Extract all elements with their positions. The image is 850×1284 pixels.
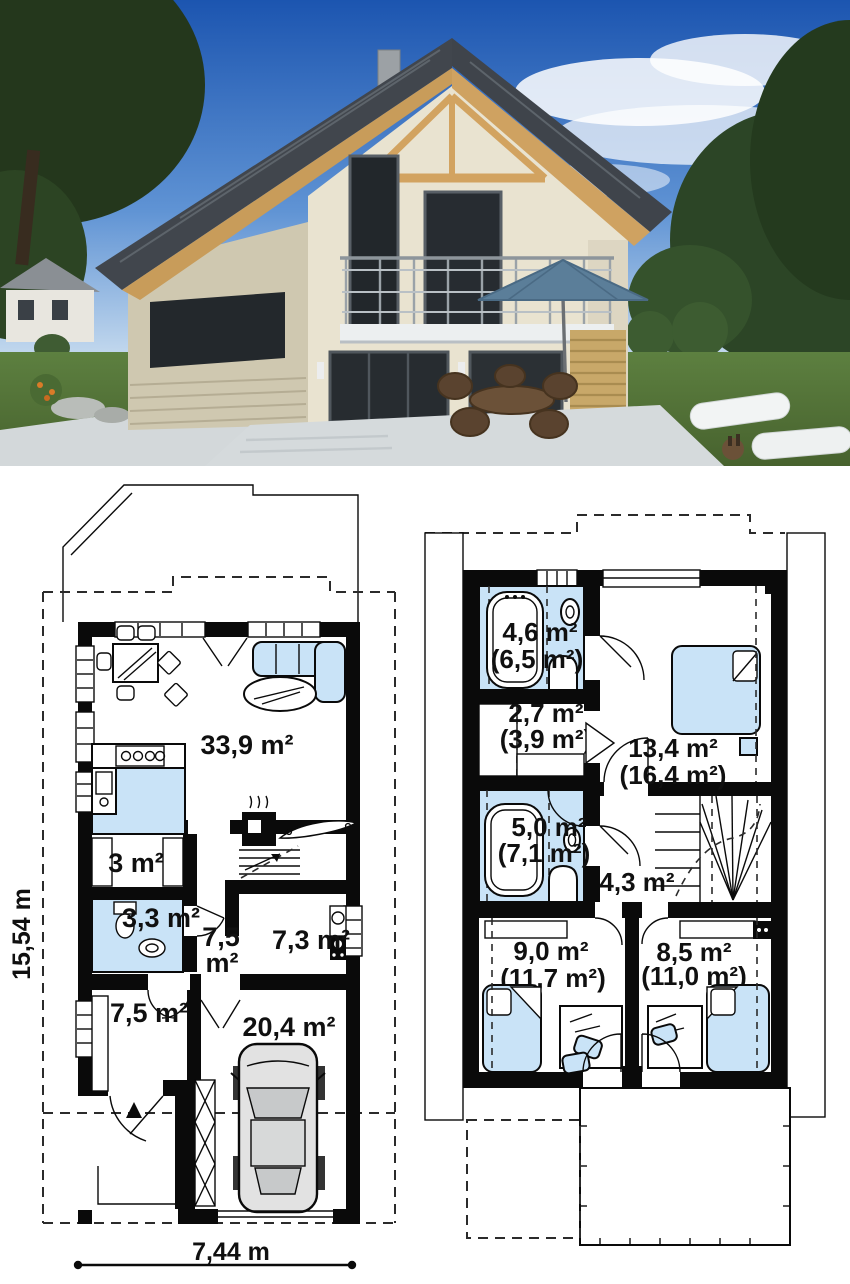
patio-door-left — [330, 352, 448, 422]
bath-gross-label: (6,5 m²) — [491, 644, 583, 674]
bedroom-bottom-right: 8,5 m² (11,0 m²) — [641, 918, 771, 1072]
chair — [138, 626, 155, 640]
wardrobe-band — [92, 996, 108, 1091]
chair — [117, 686, 134, 700]
hall-area-line2: m² — [206, 948, 239, 978]
door-swing — [600, 826, 640, 866]
car — [231, 1044, 325, 1212]
dimension-horizontal-label: 7,44 m — [192, 1238, 270, 1266]
stove — [116, 746, 164, 766]
winder-stairs — [655, 796, 771, 902]
chair — [157, 651, 181, 675]
windows — [537, 570, 700, 587]
stove-icon — [753, 921, 771, 939]
bedroom-gross-label: (16,4 m²) — [620, 760, 727, 790]
side-window-band — [150, 292, 285, 368]
entry-door — [110, 1096, 163, 1141]
terrace-outline — [63, 485, 358, 622]
wardrobe-area-label: 3 m² — [108, 848, 164, 878]
chair — [164, 683, 188, 707]
roof-slope-band-left — [425, 533, 463, 1120]
dimension-vertical-label: 15,54 m — [8, 888, 36, 980]
rack — [680, 921, 755, 938]
flame-icon — [250, 796, 268, 808]
roof-outline-dashed — [425, 515, 785, 533]
bedroom-area-label: 13,4 m² — [628, 733, 718, 763]
living-area-label: 33,9 m² — [200, 730, 293, 760]
bath-gross-label: (7,1 m²) — [498, 838, 590, 868]
stairs — [239, 846, 300, 878]
utility-area-label: 7,3 m² — [272, 925, 350, 955]
living-room: 33,9 m² — [97, 626, 345, 760]
lower-roof-dashed — [467, 1120, 580, 1238]
upper-floor-plan: 4,6 m² (6,5 m²) 2,7 m² (3,9 m²) — [425, 515, 825, 1245]
chair — [97, 653, 111, 670]
hall-area-label: 4,3 m² — [599, 867, 674, 897]
pillow — [487, 989, 511, 1015]
floor-plans-drawing: 33,9 m² 3 m² — [0, 466, 850, 1284]
bath-area-label: 4,6 m² — [502, 617, 577, 647]
garage-door-swing — [201, 1000, 240, 1028]
bathroom-area-label: 3,3 m² — [122, 903, 200, 933]
door-swing — [600, 636, 644, 680]
bedroom-area-label: 9,0 m² — [513, 936, 588, 966]
kitchen — [92, 744, 185, 834]
bedroom-area-label: 7,5 m² — [110, 998, 188, 1028]
nightstand — [740, 738, 757, 755]
sink — [96, 772, 112, 794]
wardrobe-gross-label: (3,9 m²) — [500, 724, 592, 754]
garage: 20,4 m² — [195, 1012, 336, 1217]
house-photo — [0, 0, 850, 466]
door-leaf — [586, 723, 614, 763]
floor-plans: 33,9 m² 3 m² — [0, 466, 850, 1284]
chair — [117, 626, 134, 640]
terrace-step — [71, 493, 132, 555]
bedroom-bottom-left: 9,0 m² (11,7 m²) — [483, 918, 668, 1074]
roof-slope-band-right — [787, 533, 825, 1117]
page: 33,9 m² 3 m² — [0, 0, 850, 1284]
sink-icon — [139, 939, 165, 957]
terrace-door — [203, 638, 247, 666]
garage-area-label: 20,4 m² — [242, 1012, 335, 1042]
balcony-deck — [580, 1088, 790, 1245]
house-photo-scene — [0, 0, 850, 466]
entrance-arrow-icon — [126, 1102, 142, 1118]
rug — [244, 677, 316, 711]
bedroom-ground: 7,5 m² — [92, 996, 188, 1091]
wall-lamp — [317, 362, 324, 379]
rack — [517, 754, 584, 776]
toilet-icon — [549, 866, 577, 902]
wardrobe-shelves — [163, 838, 183, 886]
bathroom-top: 4,6 m² (6,5 m²) — [479, 586, 644, 690]
porch-step — [98, 1166, 175, 1204]
sofa-corner — [315, 642, 345, 702]
hall-stairs: 4,3 m² — [599, 796, 771, 902]
pillow — [711, 989, 735, 1015]
ground-floor-plan: 33,9 m² 3 m² — [8, 485, 395, 1269]
chimney — [765, 574, 783, 594]
upper-window — [350, 156, 398, 328]
wardrobe-room: 3 m² — [92, 838, 183, 886]
bedroom-right: 13,4 m² (16,4 m²) — [604, 586, 760, 790]
utility-room: 7,3 m² — [272, 906, 350, 960]
